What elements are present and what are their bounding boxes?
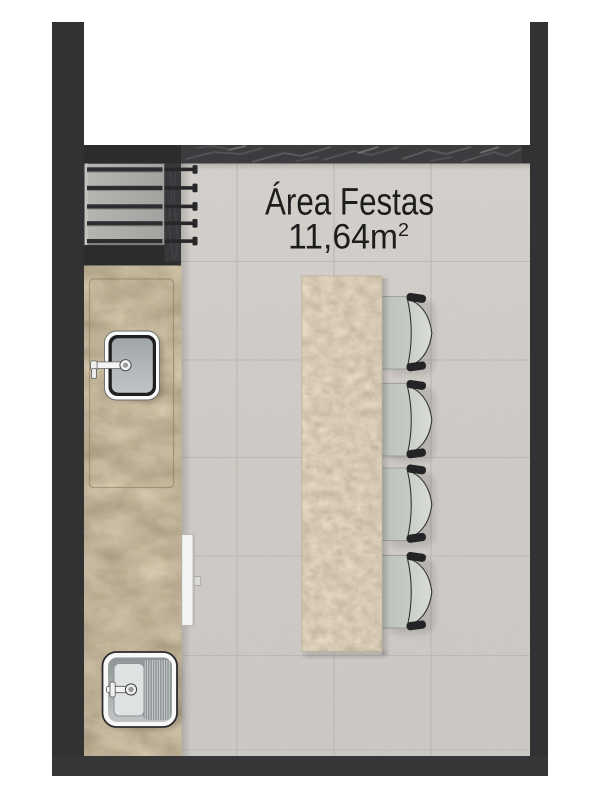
svg-text:2: 2 (398, 219, 409, 240)
svg-text:11,64m: 11,64m (288, 217, 398, 257)
